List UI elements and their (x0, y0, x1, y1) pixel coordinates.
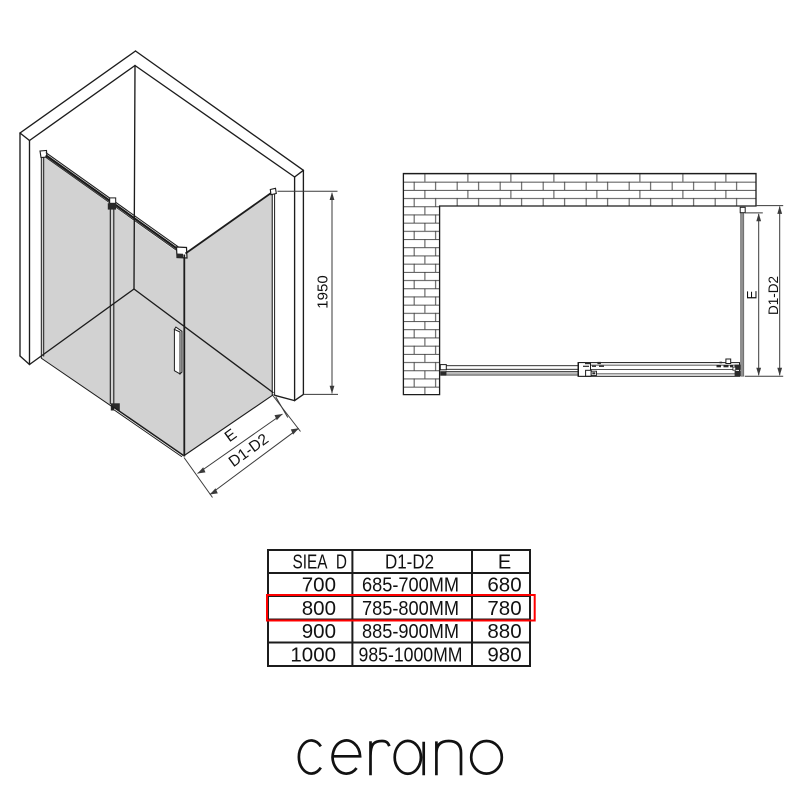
svg-text:E: E (498, 552, 511, 574)
svg-text:D1-D2: D1-D2 (766, 276, 781, 315)
svg-text:880: 880 (487, 620, 521, 643)
svg-text:SIEA D: SIEA D (293, 552, 348, 574)
svg-text:1000: 1000 (290, 643, 336, 666)
svg-text:885-900MM: 885-900MM (362, 620, 459, 643)
svg-text:785-800MM: 785-800MM (362, 597, 459, 620)
svg-text:700: 700 (302, 574, 336, 597)
svg-text:685-700MM: 685-700MM (362, 574, 459, 597)
svg-text:800: 800 (302, 597, 336, 620)
svg-text:680: 680 (487, 574, 521, 597)
svg-text:780: 780 (487, 597, 521, 620)
svg-text:985-1000MM: 985-1000MM (359, 643, 463, 666)
svg-text:980: 980 (487, 643, 521, 666)
svg-text:E: E (744, 290, 759, 299)
svg-text:900: 900 (302, 620, 336, 643)
svg-text:1950: 1950 (315, 275, 332, 308)
svg-text:D1-D2: D1-D2 (385, 552, 434, 574)
